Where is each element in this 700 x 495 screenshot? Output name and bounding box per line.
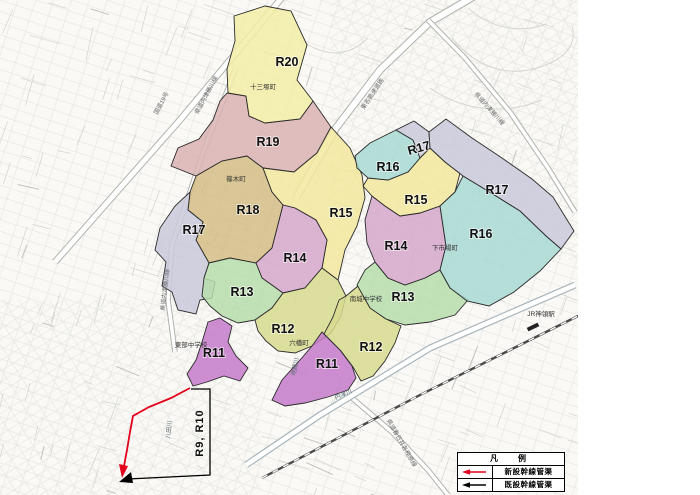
area-label: 篠木町	[226, 174, 246, 183]
zone-label-R17-west: R17	[183, 223, 206, 237]
area-label: 下市場町	[432, 243, 459, 252]
zone-label-R13-west: R13	[231, 285, 254, 299]
zone-label-R20: R20	[276, 55, 299, 69]
zone-label-R14-west: R14	[284, 251, 307, 265]
zone-label-R19: R19	[257, 135, 280, 149]
zone-label-R16-east: R16	[470, 227, 493, 241]
new-trunk-symbol	[458, 466, 493, 478]
zone-label-R11-central: R11	[316, 357, 338, 371]
zone-label-R12-west: R12	[272, 322, 295, 336]
legend-label-new-trunk: 新設幹線管渠	[493, 466, 564, 478]
legend-title: 凡 例	[458, 453, 564, 466]
map-layers: R19R20R18R17R15R14R13R12R12R13R14R15R16R…	[0, 0, 588, 495]
area-label: 東部中学校	[175, 340, 208, 349]
zone-label-R13-east: R13	[392, 290, 415, 304]
station-label: JR神領駅	[527, 309, 555, 318]
legend-item-new-trunk: 新設幹線管渠	[458, 466, 564, 479]
zone-label-R15-east: R15	[405, 193, 428, 207]
left-arrow-icon	[462, 468, 488, 476]
legend-label-existing-trunk: 既設幹線管渠	[493, 479, 564, 491]
zone-label-R15-west: R15	[330, 206, 353, 220]
zone-label-R16-north: R16	[377, 160, 400, 174]
zone-label-R17-east: R17	[486, 183, 509, 197]
area-label: 南城中学校	[350, 294, 383, 303]
legend-item-existing-trunk: 既設幹線管渠	[458, 479, 564, 491]
zone-label-R18: R18	[237, 203, 260, 217]
sewer-zoning-map-document: R19R20R18R17R15R14R13R12R12R13R14R15R16R…	[0, 0, 700, 495]
legend: 凡 例 新設幹線管渠 既設幹線管渠	[457, 452, 565, 492]
area-label: 穴橋町	[289, 338, 309, 347]
zone-label-R14-east: R14	[385, 239, 408, 253]
area-label: 十三塚町	[250, 82, 277, 91]
existing-trunk-symbol	[458, 479, 493, 491]
r9-r10-label: R9, R10	[194, 409, 206, 456]
left-arrow-icon	[462, 481, 488, 489]
zone-label-R12-east: R12	[360, 340, 383, 354]
zoning-map: R19R20R18R17R15R14R13R12R12R13R14R15R16R…	[0, 0, 700, 495]
